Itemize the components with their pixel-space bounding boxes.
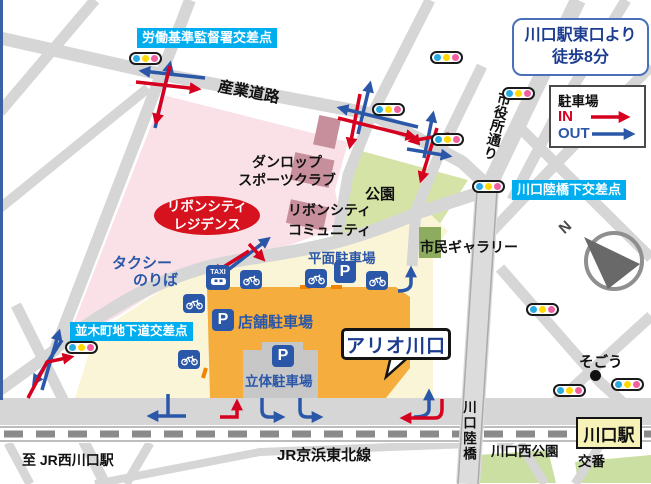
walk-time-box: 川口駅東口より 徒歩8分 (512, 18, 649, 76)
traffic-light-icon (431, 133, 464, 146)
bicycle-icon (240, 270, 262, 289)
dunlop-line2: スポーツクラブ (232, 171, 342, 189)
label-gallery: 市民ギャラリー (420, 237, 518, 257)
label-taxi-line2: のりば (133, 269, 178, 290)
label-community: リボンシティ コミュニティ (288, 201, 371, 240)
traffic-light-icon (430, 51, 463, 64)
traffic-light-icon (65, 341, 98, 354)
intersection-label-rodo: 労働基準監督署交差点 (137, 28, 277, 48)
label-park: 公園 (365, 183, 395, 204)
intersection-label-rikkyoshita: 川口陸橋下交差点 (512, 180, 626, 200)
walk-time-line1: 川口駅東口より (514, 25, 647, 47)
traffic-light-icon (553, 384, 586, 397)
parking-legend: 駐車場 IN OUT (549, 85, 646, 148)
traffic-light-icon (129, 52, 162, 65)
access-map: 労働基準監督署交差点 並木町地下道交差点 川口陸橋下交差点 川口駅東口より 徒歩… (0, 0, 651, 484)
label-sogo: そごう (579, 351, 623, 372)
map-edge-line (0, 0, 3, 400)
label-store-parking: 店舗駐車場 (238, 311, 313, 332)
traffic-light-icon (526, 303, 559, 316)
legend-in-label: IN (558, 108, 573, 125)
legend-out-arrow (590, 128, 637, 140)
parking-icon-multistory: P (272, 345, 294, 367)
dunlop-line1: ダンロップ (232, 153, 342, 171)
label-koban: 交番 (578, 450, 605, 470)
traffic-light-icon (472, 180, 505, 193)
residence-line1: リボンシティ (154, 198, 260, 216)
road-label-jr-line: JR京浜東北線 (277, 444, 371, 465)
bicycle-icon (178, 350, 200, 369)
legend-in-arrow (585, 111, 637, 123)
sogo-dot (590, 370, 601, 381)
community-line1: リボンシティ (288, 201, 371, 221)
parking-icon-surface: P (334, 261, 356, 283)
bicycle-icon (305, 269, 327, 288)
kawaguchi-station-box: 川口駅 (576, 417, 642, 449)
road-label-rikkyo: 川口陸橋 (458, 400, 478, 462)
label-dunlop: ダンロップ スポーツクラブ (232, 153, 342, 189)
parking-icon-store: P (212, 309, 234, 331)
label-west-park: 川口西公園 (491, 440, 559, 460)
compass-icon (584, 233, 642, 289)
bicycle-icon (183, 294, 205, 313)
residence-badge: リボンシティ レジデンス (154, 196, 260, 235)
walk-time-line2: 徒歩8分 (514, 47, 647, 69)
legend-out-label: OUT (558, 125, 590, 142)
traffic-light-icon (372, 103, 405, 116)
ario-kawaguchi-bubble: アリオ川口 (341, 328, 451, 360)
label-multistory-parking: 立体駐車場 (245, 370, 313, 390)
taxi-icon-label: TAXI (210, 269, 225, 276)
taxi-stand-icon: TAXI (206, 265, 230, 290)
bicycle-icon (366, 271, 388, 290)
label-to-nishikawaguchi: 至 JR西川口駅 (22, 450, 114, 470)
residence-line2: レジデンス (154, 216, 260, 234)
legend-title: 駐車場 (558, 90, 599, 110)
intersection-label-namiki: 並木町地下道交差点 (70, 322, 193, 341)
traffic-light-icon (502, 87, 535, 100)
taxi-car-glyph (210, 277, 227, 286)
community-line2: コミュニティ (288, 221, 371, 241)
traffic-light-icon (611, 378, 644, 391)
